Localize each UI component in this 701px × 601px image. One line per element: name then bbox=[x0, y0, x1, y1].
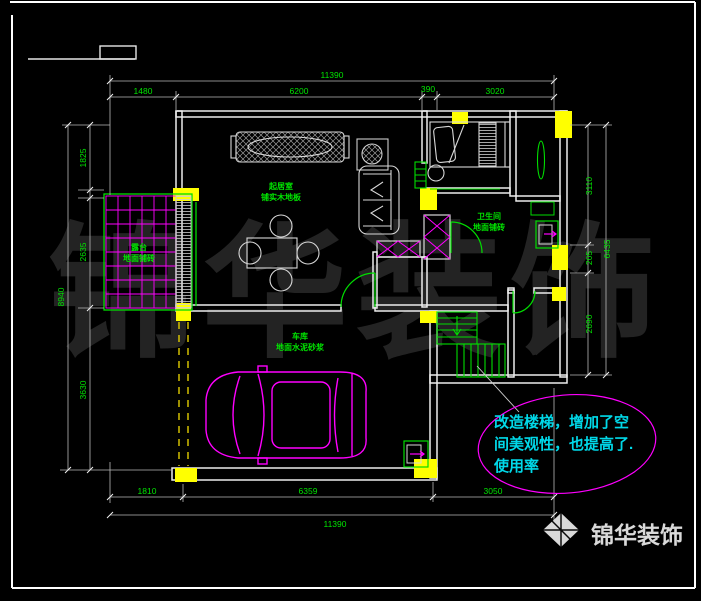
dim-bottom-3: 3050 bbox=[484, 486, 503, 496]
room-living-finish: 铺实木地板 bbox=[261, 192, 301, 203]
dim-left-total: 8940 bbox=[56, 287, 66, 306]
room-label-terrace: 露台 地面铺砖 bbox=[123, 242, 155, 264]
room-garage-name: 车库 bbox=[276, 331, 324, 342]
room-label-garage: 车库 地面水泥砂浆 bbox=[276, 331, 324, 353]
dim-top-1: 1480 bbox=[134, 86, 153, 96]
bath-tag-box bbox=[531, 202, 554, 215]
room-garage-finish: 地面水泥砂浆 bbox=[276, 342, 324, 353]
room-label-living: 起居室 铺实木地板 bbox=[261, 181, 301, 203]
potted-plant bbox=[357, 139, 388, 170]
mirror bbox=[538, 141, 545, 179]
dim-right-1: 3110 bbox=[584, 177, 594, 196]
logo-diamond-icon bbox=[543, 513, 579, 547]
floorplan-drawing: 11390 1480 6200 390 3020 1810 6359 3050 … bbox=[0, 0, 701, 601]
dim-top-total: 11390 bbox=[320, 70, 343, 80]
terrace-hatch-strip bbox=[176, 196, 191, 308]
car bbox=[206, 366, 366, 464]
closet-x-vertical bbox=[424, 215, 450, 259]
washbasin bbox=[536, 221, 558, 248]
room-terrace-finish: 地面铺砖 bbox=[123, 253, 155, 264]
annotation-line-1: 改造楼梯，增加了空 bbox=[494, 412, 633, 434]
annotation-line-3: 使用率 bbox=[494, 456, 633, 478]
dim-left-2: 2635 bbox=[78, 242, 88, 261]
floorplan-canvas: 锦华装饰 bbox=[0, 0, 701, 601]
dim-top-2: 6200 bbox=[290, 86, 309, 96]
dim-right-total: 6435 bbox=[602, 239, 612, 258]
dim-bottom-2: 6359 bbox=[299, 486, 318, 496]
dim-bottom-1: 1810 bbox=[138, 486, 157, 496]
column-grid-dashed-lines bbox=[179, 322, 188, 466]
dim-left-3: 3630 bbox=[78, 380, 88, 399]
dim-left-1: 1825 bbox=[78, 148, 88, 167]
room-living-name: 起居室 bbox=[261, 181, 301, 192]
annotation-line-2: 间美观性，也提高了. bbox=[494, 434, 633, 456]
room-bath-finish: 地面铺砖 bbox=[473, 222, 505, 233]
dining-set bbox=[239, 215, 319, 291]
sofa bbox=[359, 166, 399, 234]
room-bath-name: 卫生间 bbox=[473, 211, 505, 222]
cabinet-x-horizontal bbox=[377, 241, 420, 257]
adjacent-structure bbox=[28, 46, 136, 59]
door-swings bbox=[341, 222, 535, 313]
sheet-border bbox=[10, 2, 695, 588]
sideboard-cabinet bbox=[231, 132, 349, 162]
stairs bbox=[437, 312, 505, 377]
logo-text: 锦华装饰 bbox=[591, 516, 683, 550]
dim-right-2: 205 bbox=[584, 251, 594, 265]
annotation-text: 改造楼梯，增加了空 间美观性，也提高了. 使用率 bbox=[494, 412, 633, 478]
room-label-bath: 卫生间 地面铺砖 bbox=[473, 211, 505, 233]
dim-top-3: 390 bbox=[421, 84, 435, 94]
room-terrace-name: 露台 bbox=[123, 242, 155, 253]
dim-bottom-total: 11390 bbox=[323, 519, 346, 529]
bed bbox=[428, 122, 510, 181]
dim-top-4: 3020 bbox=[486, 86, 505, 96]
dim-right-3: 2690 bbox=[584, 314, 594, 333]
